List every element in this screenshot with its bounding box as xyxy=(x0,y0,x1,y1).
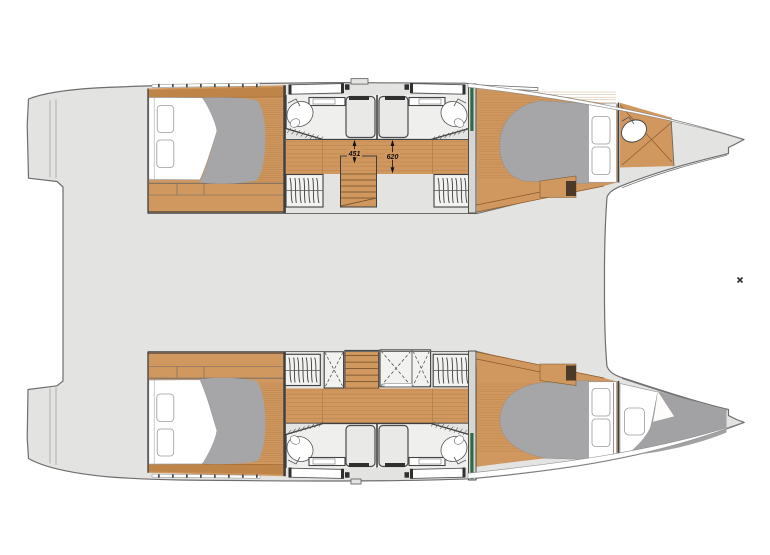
svg-text:451: 451 xyxy=(348,151,361,158)
svg-text:620: 620 xyxy=(387,154,399,161)
